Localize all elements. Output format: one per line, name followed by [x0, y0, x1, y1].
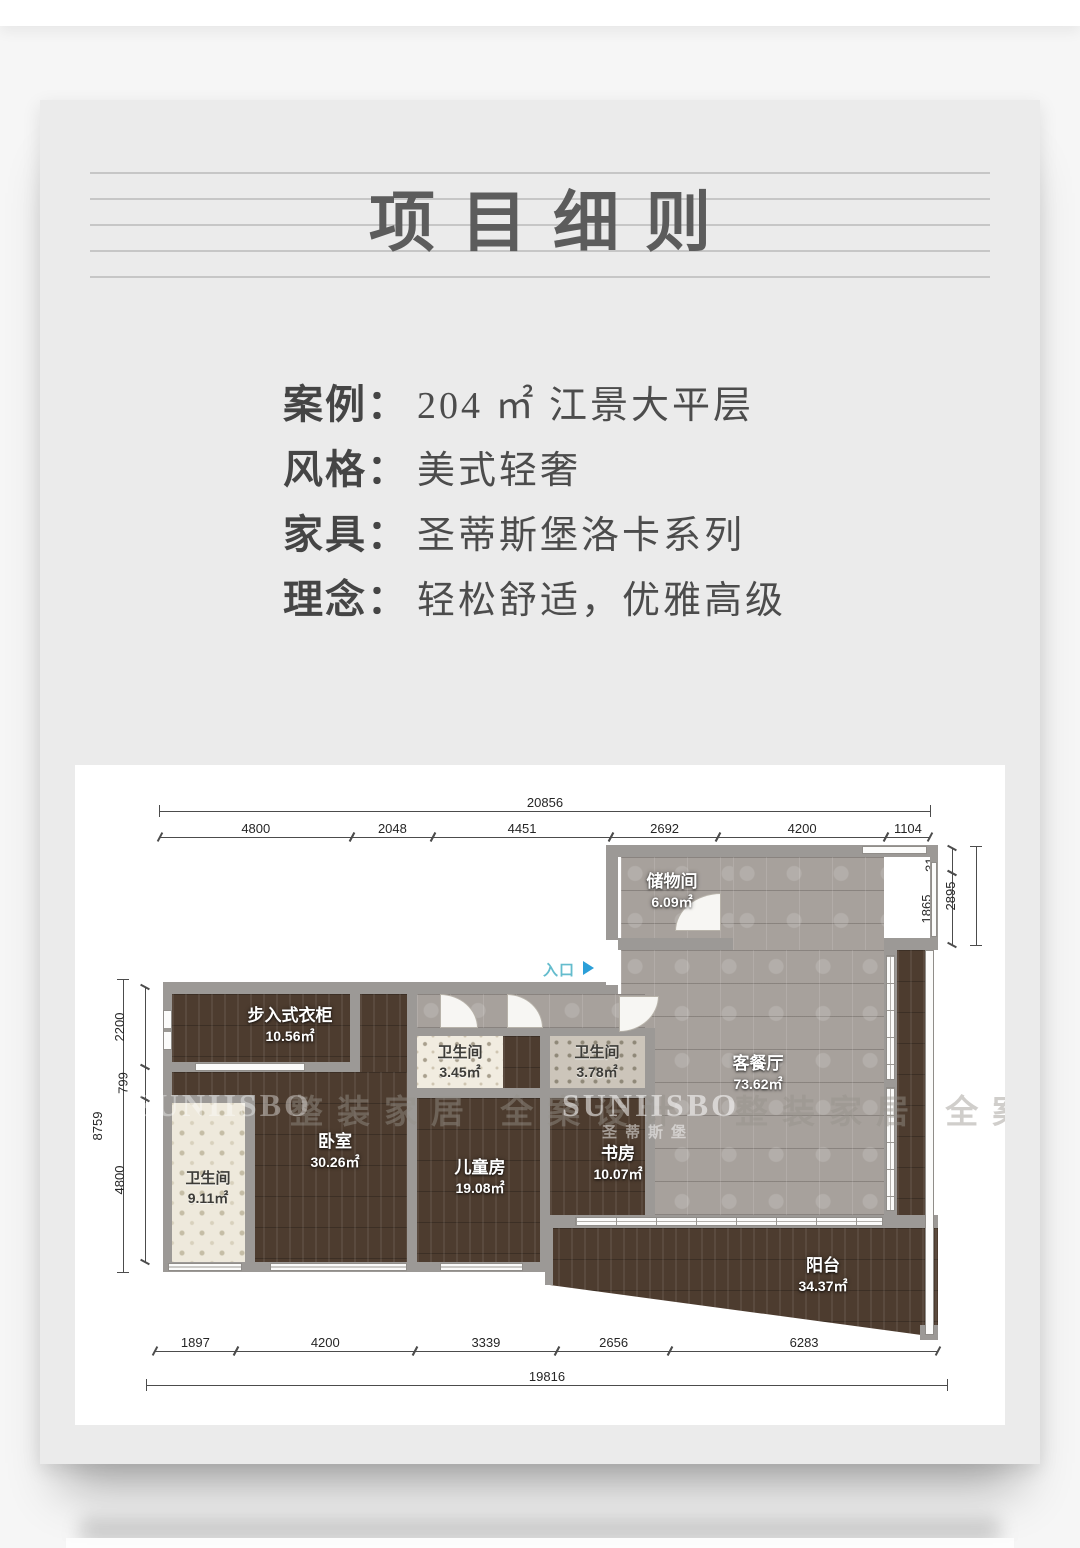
info-label-furniture: 家具： — [283, 502, 409, 560]
room-label-study: 书房10.07㎡ — [558, 1143, 678, 1183]
top-page-edge — [0, 0, 1080, 26]
brand-watermark-left: SUNIISBO — [135, 1087, 312, 1124]
entrance-label: 入口 — [543, 959, 575, 980]
info-label-style: 风格： — [283, 437, 409, 495]
entry-opening — [606, 940, 618, 985]
info-row-furniture: 家具： 圣蒂斯堡洛卡系列 — [283, 502, 745, 560]
window-balcony-top — [575, 1217, 883, 1226]
dim-left-segments: 2200 799 4800 — [137, 987, 146, 1262]
wall-closet-right — [350, 982, 360, 1072]
room-label-living: 客餐厅73.62㎡ — [698, 1053, 818, 1093]
info-label-concept: 理念： — [283, 567, 409, 625]
info-row-concept: 理念： 轻松舒适，优雅高级 — [283, 567, 786, 625]
entry-arrow-icon — [583, 961, 594, 975]
room-label-bath3: 卫生间9.11㎡ — [148, 1169, 268, 1207]
dim-right-outer: 2895 — [968, 847, 977, 945]
room-label-bedroom: 卧室30.26㎡ — [275, 1131, 395, 1171]
info-label-case: 案例： — [283, 372, 409, 430]
window-right-upper — [931, 862, 937, 937]
window-bath3-bottom — [168, 1263, 242, 1271]
poster-card: 项目细则 案例： 204 ㎡ 江景大平层 风格： 美式轻奢 家具： 圣蒂斯堡洛卡… — [40, 100, 1040, 1464]
info-value-concept: 轻松舒适，优雅高级 — [417, 569, 786, 624]
info-value-style: 美式轻奢 — [417, 439, 581, 494]
dim-bottom-total: 19816 — [147, 1377, 947, 1386]
page: { "page": { "title": "项目细则" }, "info": {… — [0, 0, 1080, 1546]
page-title: 项目细则 — [40, 184, 1040, 264]
wall-balcony-left — [545, 1228, 553, 1285]
window-living-right-1 — [886, 955, 895, 1080]
brand-watermark-cn: 圣蒂斯堡 — [602, 1121, 694, 1142]
dim-top-total: 20856 — [160, 803, 930, 812]
title-line-1 — [90, 172, 990, 174]
wall-storage-bottom — [613, 938, 733, 950]
room-label-kids: 儿童房19.08㎡ — [420, 1157, 540, 1197]
room-label-balcony: 阳台34.37㎡ — [763, 1255, 883, 1295]
dim-top-segments: 4800 2048 4451 2692 4200 1104 — [160, 829, 930, 838]
info-value-furniture: 圣蒂斯堡洛卡系列 — [417, 504, 745, 559]
info-row-style: 风格： 美式轻奢 — [283, 437, 581, 495]
info-row-case: 案例： 204 ㎡ 江景大平层 — [283, 372, 754, 430]
living-floor-top — [733, 857, 884, 950]
room-label-bath1: 卫生间3.45㎡ — [400, 1043, 520, 1081]
dim-bottom-segments: 1897 4200 3339 2656 6283 — [155, 1343, 938, 1352]
room-label-closet: 步入式衣柜10.56㎡ — [230, 1005, 350, 1045]
floorplan-panel: 20856 4800 2048 4451 2692 4200 1104 8759… — [75, 765, 1005, 1425]
info-value-case: 204 ㎡ 江景大平层 — [417, 374, 754, 429]
room-label-bath2: 卫生间3.78㎡ — [537, 1043, 657, 1081]
window-kids-bottom — [440, 1263, 523, 1271]
title-line-5 — [90, 276, 990, 278]
balcony-outer-railing — [925, 950, 934, 1335]
sill-closet-bottom — [195, 1063, 305, 1071]
window-closet-left — [163, 1010, 172, 1050]
window-bedroom-bottom — [270, 1263, 407, 1271]
window-top-right — [862, 846, 927, 854]
bottom-page-edge — [66, 1538, 1014, 1548]
room-label-storage: 储物间6.09㎡ — [612, 871, 732, 911]
wall-window-header — [884, 938, 938, 950]
wall-top-left-section — [163, 982, 606, 994]
